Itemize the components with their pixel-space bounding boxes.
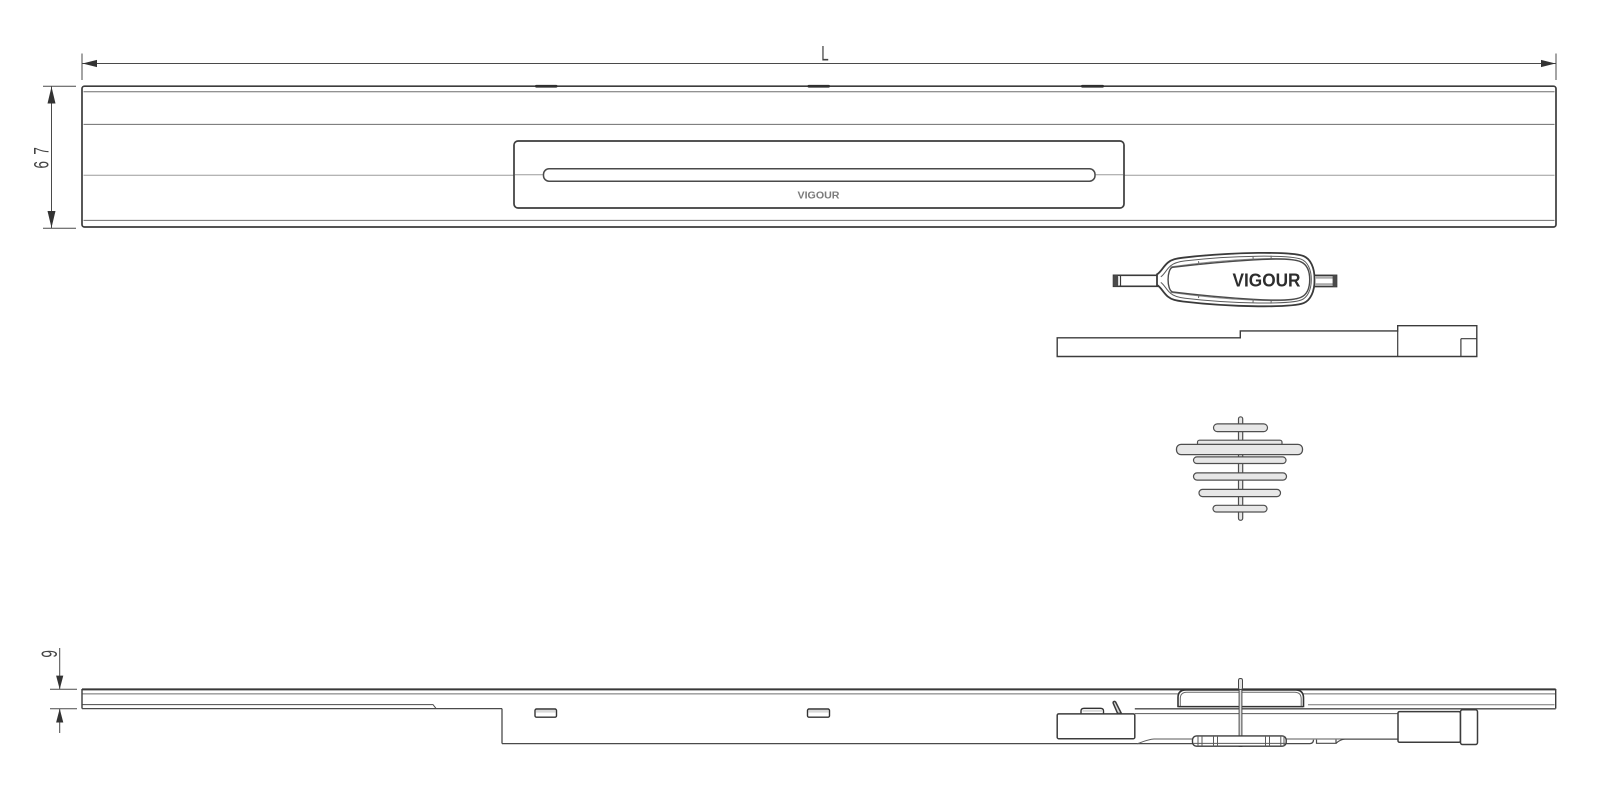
svg-text:9: 9 — [36, 650, 61, 658]
svg-text:VIGOUR: VIGOUR — [798, 190, 840, 202]
svg-text:67: 67 — [29, 141, 53, 169]
svg-text:L: L — [821, 41, 828, 65]
svg-text:VIGOUR: VIGOUR — [1233, 271, 1301, 291]
